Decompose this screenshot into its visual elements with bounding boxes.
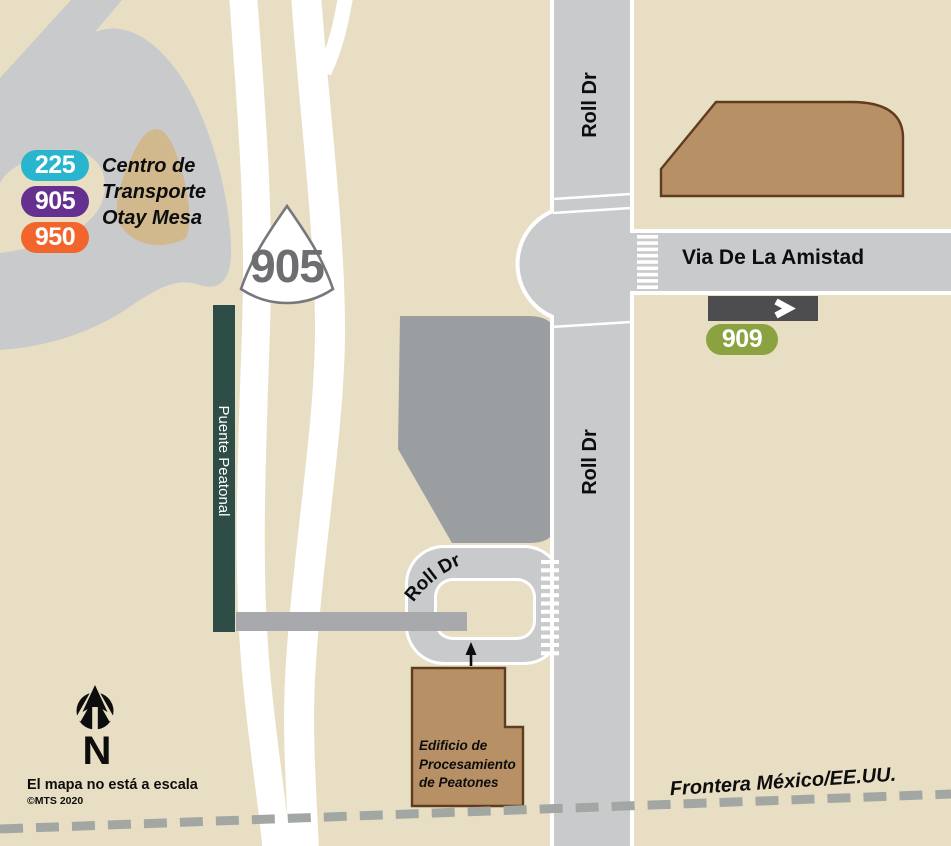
route-badge-225-label: 225 [35,151,75,180]
route-badge-909-label: 909 [722,325,762,354]
route-badge-905: 905 [21,186,89,217]
processing-building-label-line2: Procesamiento [419,756,516,775]
freeway-lane-left [243,0,277,846]
transit-center-label: Centro de Transporte Otay Mesa [102,153,206,231]
transit-center-label-line3: Otay Mesa [102,205,206,231]
map-graphics: 905 Roll Dr [0,0,951,846]
route-badge-905-label: 905 [35,187,75,216]
freeway-ramp [324,0,346,72]
roundabout-shape [520,209,631,320]
inspection-facility-shape [398,316,557,543]
via-de-la-amistad-label: Via De La Amistad [663,246,883,270]
transit-center-label-line2: Transporte [102,179,206,205]
crosswalk-via-amistad [637,235,658,289]
processing-building-label: Edificio de Procesamiento de Peatones [419,737,516,793]
route-909-direction-bar [708,296,818,321]
highway-905-shield-number: 905 [250,240,324,292]
processing-building-label-line3: de Peatones [419,774,516,793]
roll-dr-south-label: Roll Dr [578,417,602,507]
otay-mesa-transit-map: 905 Roll Dr 225 905 950 Centro de Transp [0,0,951,846]
route-badge-950-label: 950 [35,223,75,252]
route-badge-950: 950 [21,222,89,253]
freeway-lane-right [299,0,330,846]
pedestrian-walkway-shape [236,612,467,631]
transit-center-label-line1: Centro de [102,153,206,179]
pedestrian-bridge-label: Puente Peatonal [215,396,233,526]
processing-building-label-line1: Edificio de [419,737,516,756]
compass-north-letter: N [79,729,115,774]
route-badge-909: 909 [706,324,778,355]
roll-dr-north-label: Roll Dr [578,60,602,150]
commercial-building-shape [661,102,903,196]
route-badge-225: 225 [21,150,89,181]
copyright-note: ©MTS 2020 [27,795,83,807]
scale-note: El mapa no está a escala [27,777,198,793]
